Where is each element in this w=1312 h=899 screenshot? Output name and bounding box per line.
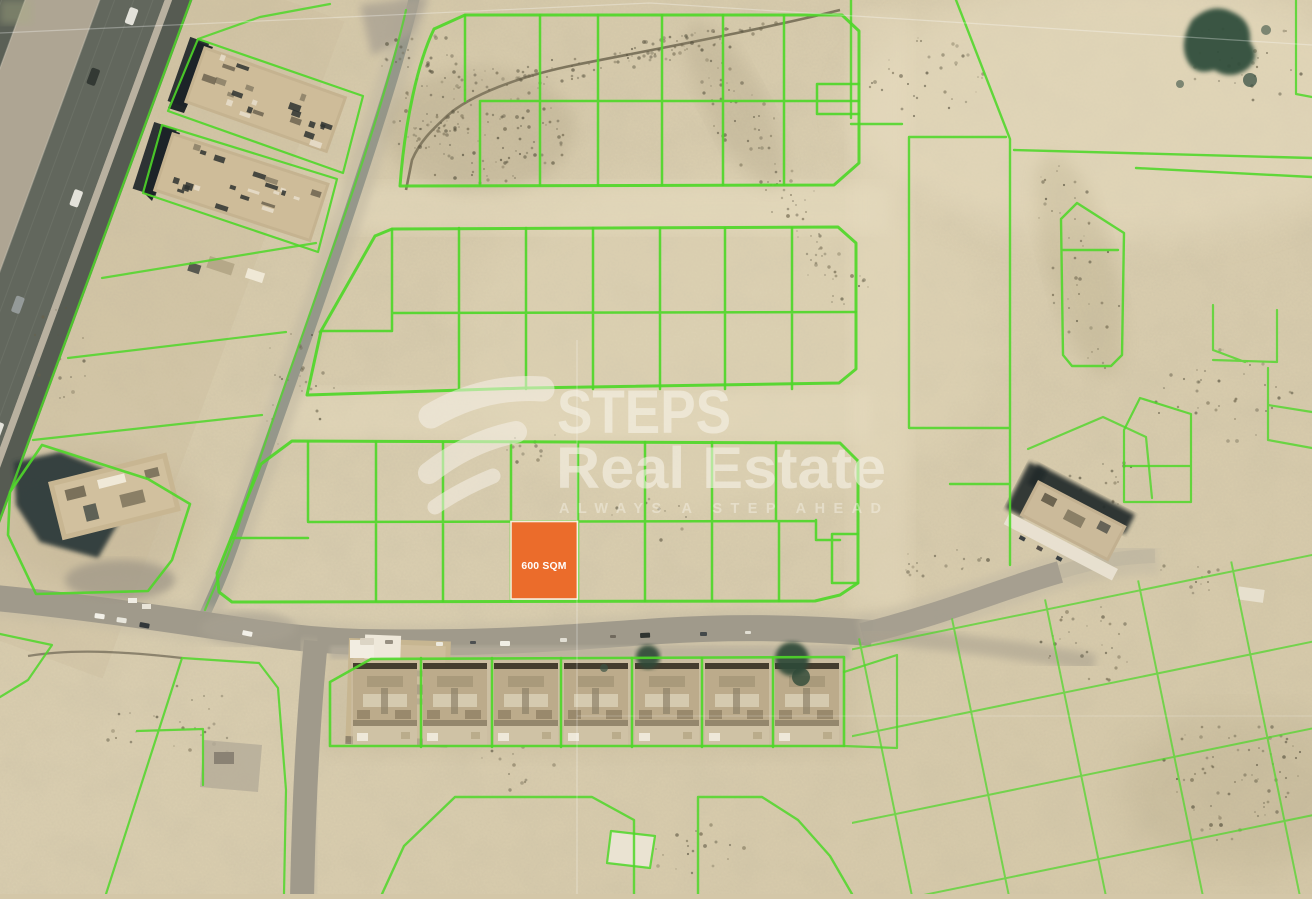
svg-text:ALWAYS A STEP AHEAD: ALWAYS A STEP AHEAD [559,501,889,517]
svg-text:600 SQM: 600 SQM [521,561,566,572]
svg-text:Real Estate: Real Estate [556,436,886,501]
